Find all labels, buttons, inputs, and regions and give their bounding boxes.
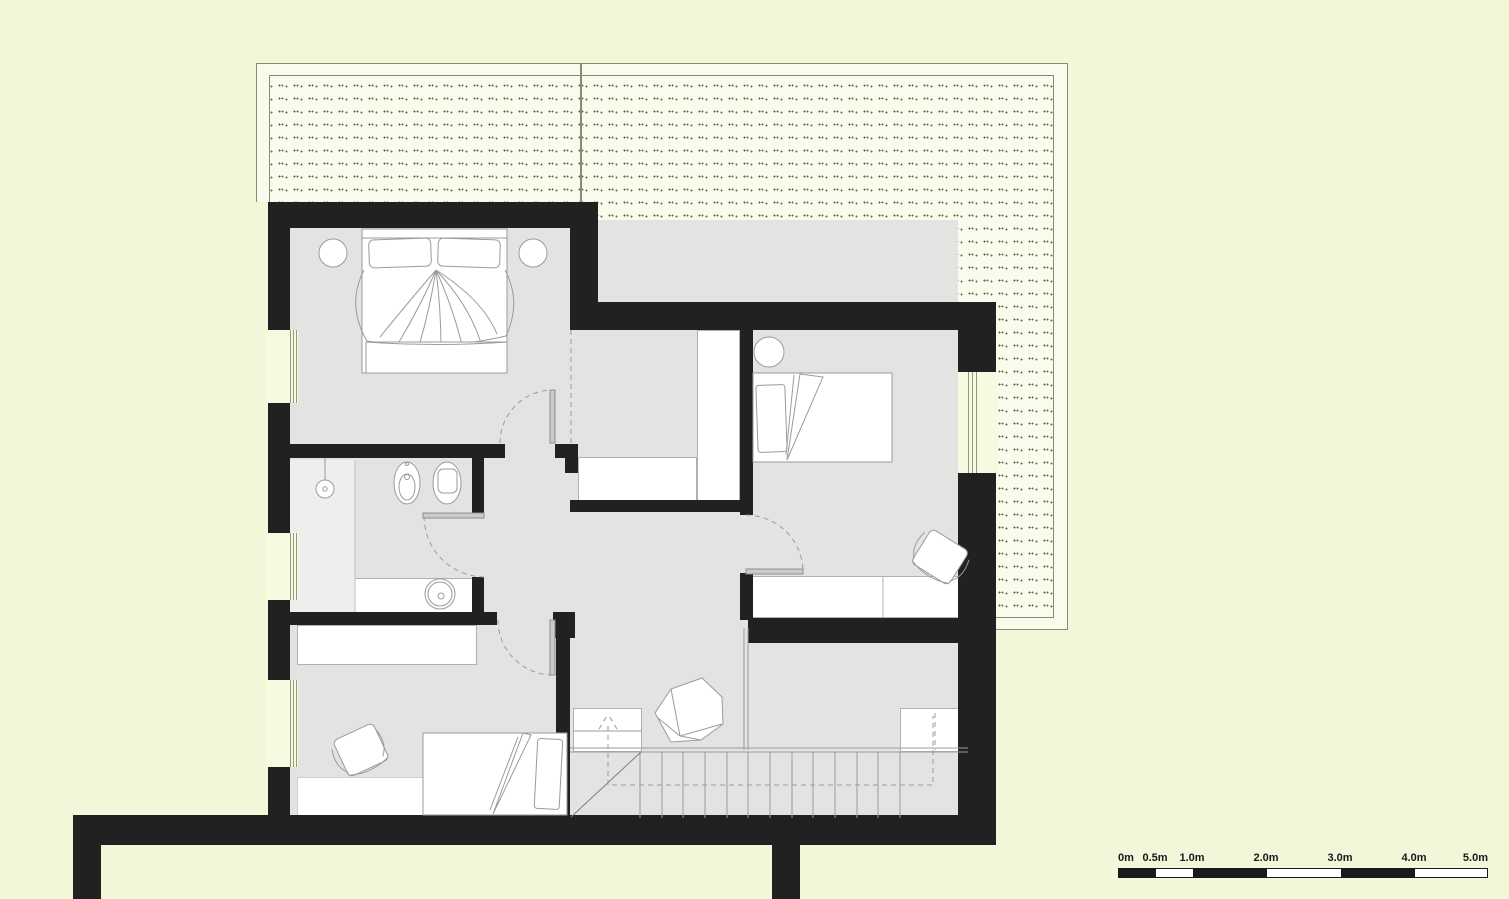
scale-bar: 0m 0.5m 1.0m 2.0m 3.0m 4.0m 5.0m <box>1118 852 1488 878</box>
stair-walk-line <box>599 713 935 785</box>
bidet <box>394 462 420 504</box>
scale-label-1: 1.0m <box>1179 852 1204 864</box>
stairs <box>570 628 968 818</box>
scale-label-4: 4.0m <box>1401 852 1426 864</box>
desk-chair-bottom <box>327 722 391 782</box>
scale-seg-2 <box>1193 869 1267 877</box>
armchair <box>655 678 723 742</box>
bedside-lamp-left <box>319 239 347 267</box>
door-right-bedroom <box>746 515 803 574</box>
door-master <box>500 390 555 443</box>
scale-seg-1 <box>1119 869 1156 877</box>
desk-chair-right <box>905 525 974 590</box>
furniture-layer <box>0 0 1509 899</box>
door-bathroom <box>423 513 484 577</box>
scale-seg-3 <box>1341 869 1415 877</box>
door-bottom-bedroom <box>498 620 555 675</box>
bedside-lamp-right <box>519 239 547 267</box>
double-bed <box>356 229 514 373</box>
scale-label-0: 0m <box>1118 852 1134 864</box>
floor-plan: 0m 0.5m 1.0m 2.0m 3.0m 4.0m 5.0m <box>0 0 1509 899</box>
scale-label-2: 2.0m <box>1253 852 1278 864</box>
bedside-lamp-right-bedroom <box>754 337 784 367</box>
washbasin <box>425 579 455 609</box>
scale-label-3: 3.0m <box>1327 852 1352 864</box>
scale-label-05: 0.5m <box>1142 852 1167 864</box>
single-bed-bottom <box>423 733 567 815</box>
toilet <box>433 462 461 504</box>
scale-label-5: 5.0m <box>1463 852 1488 864</box>
single-bed-right <box>753 373 892 462</box>
shower-head <box>316 458 334 498</box>
scale-bar-rule <box>1118 868 1488 878</box>
